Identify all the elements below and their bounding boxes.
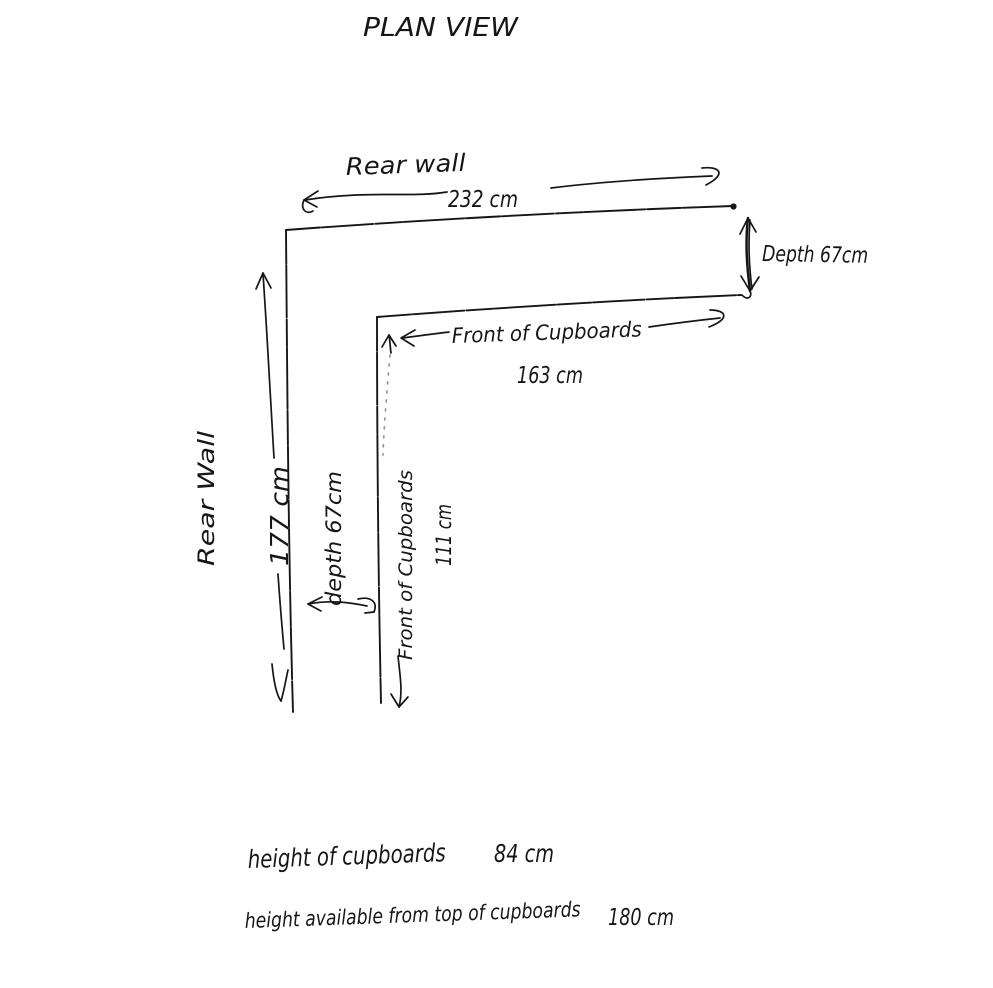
note-height-available-label: height available from top of cupboards bbox=[244, 897, 581, 933]
note-height-available-value: 180 cm bbox=[608, 905, 674, 931]
page-title: PLAN VIEW bbox=[363, 13, 519, 43]
front-left-label: Front of Cupboards bbox=[395, 470, 417, 660]
front-label-left-arrow-icon bbox=[401, 330, 449, 346]
plan-view-sketch: PLAN VIEW Rear wall 232 cm Depth 67cm bbox=[0, 0, 993, 988]
front-dimension-down-arrow-icon bbox=[391, 656, 408, 707]
note-height-of-cupboards-label: height of cupboards bbox=[247, 838, 446, 874]
front-left-dimension: 111 cm bbox=[432, 504, 456, 566]
depth-left-label: depth 67cm bbox=[322, 471, 346, 606]
front-dimension-up-arrow-icon bbox=[382, 335, 396, 455]
note-row: height of cupboards 84 cm bbox=[247, 838, 554, 874]
dimension-arrow-right-icon bbox=[551, 168, 719, 188]
depth-right-arrow-icon bbox=[740, 218, 759, 298]
dimension-arrow-left-icon bbox=[303, 191, 447, 212]
front-label-right-arrow-icon bbox=[649, 310, 724, 327]
rear-wall-left-dimension: 177 cm bbox=[265, 466, 294, 566]
cupboard-front-top-line bbox=[377, 295, 741, 317]
depth-right-label: Depth 67cm bbox=[762, 242, 868, 269]
rear-wall-left-label: Rear Wall bbox=[195, 431, 220, 566]
scanned-sketch-page: PLAN VIEW Rear wall 232 cm Depth 67cm bbox=[0, 0, 993, 988]
wall-end-dot bbox=[730, 203, 736, 209]
cupboard-front-left-line bbox=[377, 317, 381, 703]
note-height-of-cupboards-value: 84 cm bbox=[494, 839, 554, 868]
note-row: height available from top of cupboards 1… bbox=[244, 897, 674, 933]
rear-wall-top-label: Rear wall bbox=[345, 149, 466, 181]
rear-wall-top-dimension: 232 cm bbox=[448, 187, 518, 213]
front-top-label: Front of Cupboards bbox=[451, 317, 642, 348]
front-top-dimension: 163 cm bbox=[517, 363, 583, 389]
